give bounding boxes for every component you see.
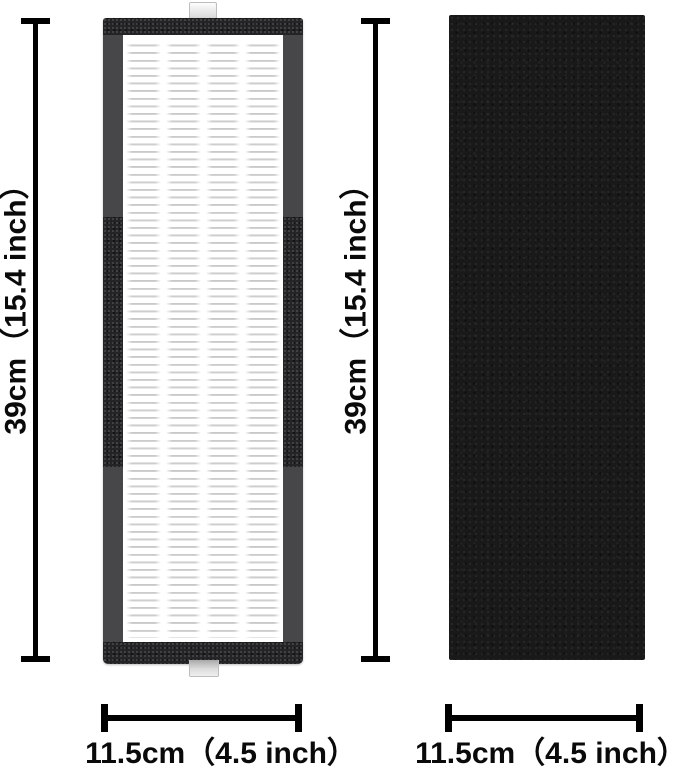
pleat-column bbox=[126, 39, 161, 638]
carbon-height-label: 39cm（15.4 inch） bbox=[340, 169, 373, 434]
dimension-end-cap bbox=[21, 656, 50, 662]
hepa-filter-image bbox=[103, 2, 303, 678]
carbon-filter-image bbox=[449, 15, 645, 660]
hepa-pleated-panel bbox=[123, 35, 283, 642]
pleat-column bbox=[166, 39, 201, 638]
product-dimension-diagram: 39cm（15.4 inch） bbox=[0, 0, 679, 775]
hepa-bottom-tab bbox=[189, 660, 219, 677]
hepa-height-label: 39cm（15.4 inch） bbox=[0, 169, 33, 434]
carbon-width-label: 11.5cm（4.5 inch） bbox=[415, 737, 679, 770]
hepa-right-rail bbox=[283, 35, 303, 642]
hepa-left-rail bbox=[103, 35, 123, 642]
pleat-column bbox=[206, 39, 241, 638]
hepa-top-foam-band bbox=[103, 18, 303, 35]
dimension-line bbox=[104, 715, 299, 721]
dimension-end-cap bbox=[361, 656, 390, 662]
dimension-line bbox=[373, 20, 378, 660]
dimension-line bbox=[33, 20, 38, 660]
dimension-end-cap bbox=[636, 704, 643, 732]
pleat-column bbox=[245, 39, 280, 638]
dimension-line bbox=[449, 715, 639, 721]
dimension-end-cap bbox=[295, 704, 302, 732]
hepa-width-label: 11.5cm（4.5 inch） bbox=[85, 737, 357, 770]
hepa-left-foam-gasket bbox=[103, 217, 123, 467]
hepa-filter-body bbox=[103, 18, 303, 664]
hepa-right-foam-gasket bbox=[283, 217, 303, 467]
